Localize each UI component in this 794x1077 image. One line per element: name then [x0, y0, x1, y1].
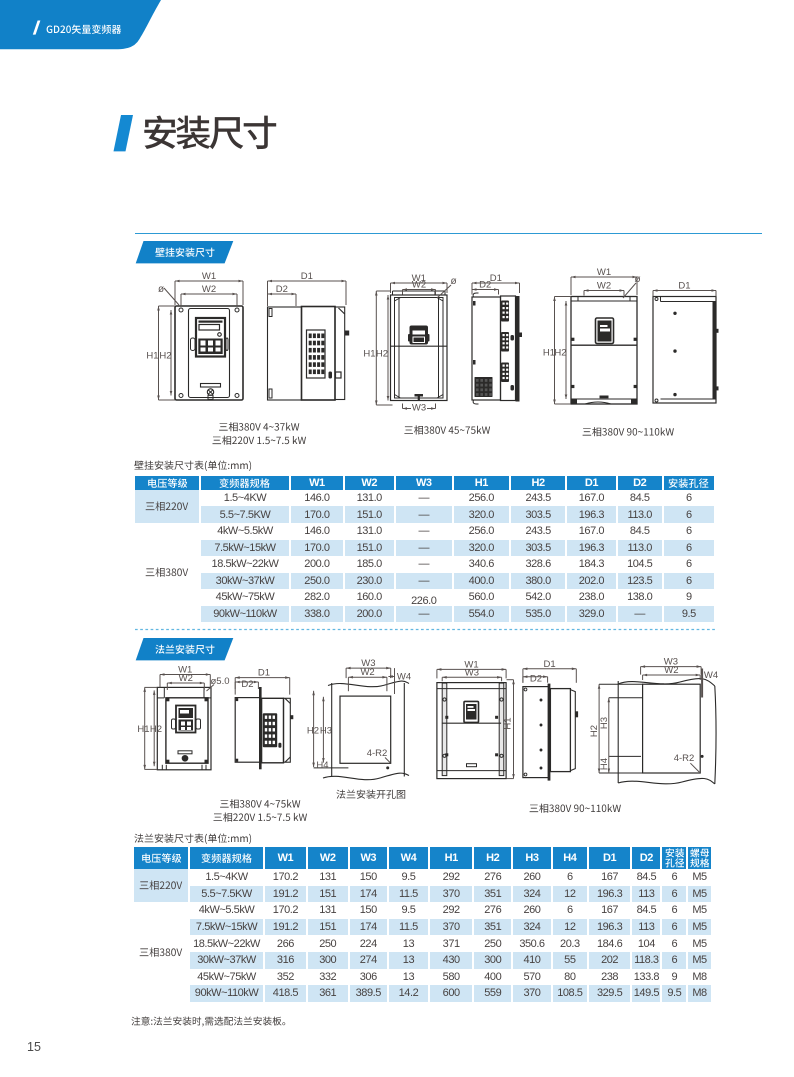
svg-text:W3: W3 — [465, 667, 479, 678]
svg-text:W4: W4 — [704, 670, 718, 681]
svg-text:H2: H2 — [159, 351, 171, 362]
svg-text:ø: ø — [158, 284, 164, 295]
svg-text:W3: W3 — [412, 403, 426, 414]
svg-text:D2: D2 — [276, 284, 288, 295]
svg-text:D2: D2 — [241, 679, 253, 690]
svg-text:H1: H1 — [137, 724, 149, 735]
svg-text:H2: H2 — [376, 349, 388, 360]
svg-text:H2: H2 — [307, 726, 319, 737]
svg-text:D1: D1 — [301, 271, 313, 282]
svg-text:4-R2: 4-R2 — [674, 753, 695, 764]
svg-text:4-R2: 4-R2 — [367, 748, 388, 759]
svg-text:H4: H4 — [599, 758, 610, 770]
svg-text:W2: W2 — [360, 667, 374, 678]
svg-text:H3: H3 — [599, 717, 610, 729]
svg-text:W4: W4 — [397, 672, 411, 683]
svg-text:D1: D1 — [490, 273, 502, 284]
svg-text:D2: D2 — [479, 280, 491, 291]
svg-text:D1: D1 — [678, 281, 690, 292]
svg-text:ø: ø — [450, 276, 456, 287]
svg-text:H2: H2 — [150, 724, 162, 735]
svg-text:W2: W2 — [202, 284, 216, 295]
svg-text:H4: H4 — [316, 760, 328, 771]
svg-text:W2: W2 — [179, 673, 193, 684]
svg-text:W2: W2 — [597, 281, 611, 292]
svg-text:W1: W1 — [597, 267, 611, 278]
svg-text:H1: H1 — [503, 717, 514, 729]
svg-text:H1: H1 — [146, 351, 158, 362]
svg-text:H2: H2 — [554, 348, 566, 359]
svg-text:D2: D2 — [530, 674, 542, 685]
svg-text:H1: H1 — [363, 349, 375, 360]
svg-text:W2: W2 — [412, 280, 426, 291]
svg-text:D1: D1 — [544, 659, 556, 670]
svg-text:D1: D1 — [258, 668, 270, 679]
svg-text:H1: H1 — [543, 348, 555, 359]
svg-text:W2: W2 — [664, 665, 678, 676]
svg-text:W1: W1 — [202, 271, 216, 282]
svg-text:H3: H3 — [320, 726, 332, 737]
